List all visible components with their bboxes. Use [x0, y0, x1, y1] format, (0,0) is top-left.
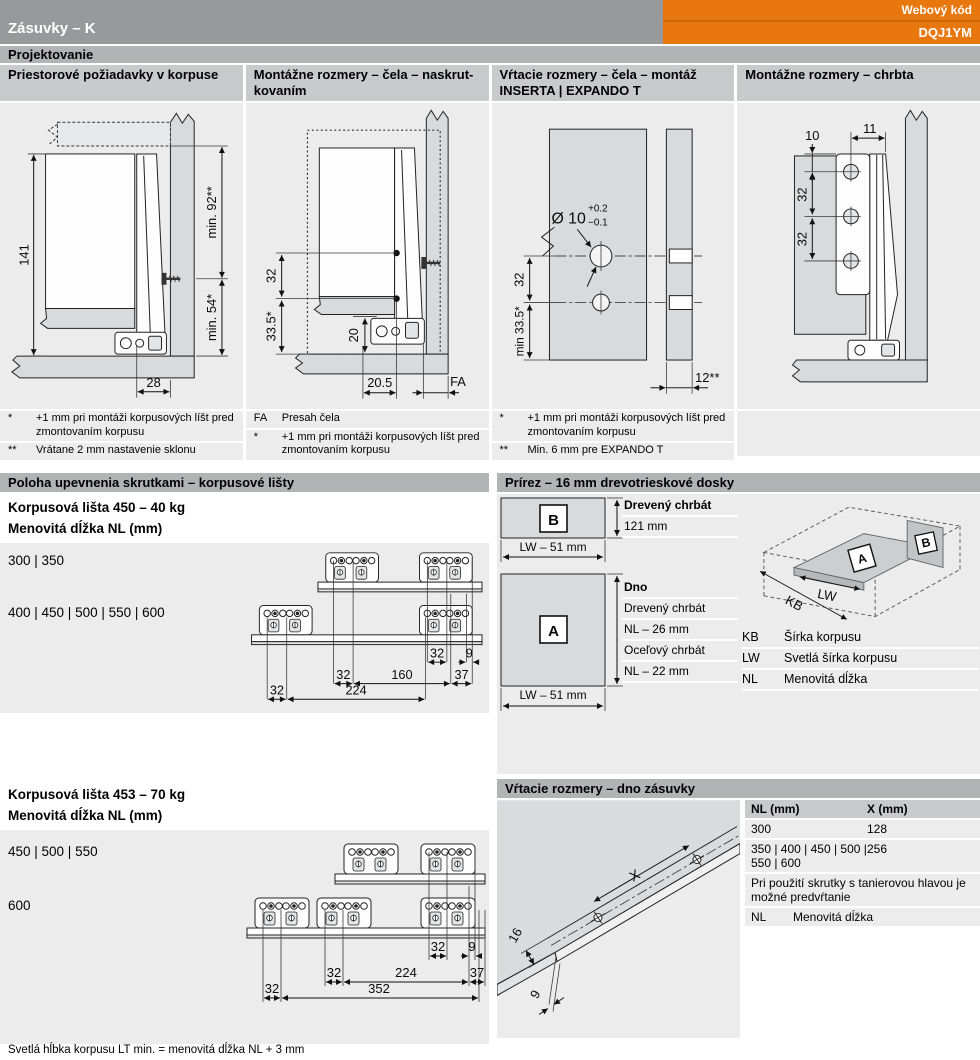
panel-b-label: B — [548, 512, 559, 529]
footnote-symbol: * — [254, 431, 282, 458]
column-header-nl: NL (mm) — [751, 802, 867, 816]
footnotes: FA Presah čela * +1 mm pri montáži korpu… — [246, 411, 489, 460]
dim-11: 11 — [863, 121, 876, 136]
legend-row: NL Menovitá dĺžka — [742, 670, 978, 691]
web-code-label: Webový kód — [663, 0, 980, 22]
label-row: Drevený chrbát — [622, 496, 738, 517]
footnote-symbol: ** — [500, 444, 528, 458]
cell-nl: 350 | 400 | 450 | 500 | 550 | 600 — [751, 842, 867, 870]
footnote: ** Min. 6 mm pre EXPANDO T — [492, 443, 735, 460]
drawer-isometric-drawing: A B LW KB — [742, 494, 980, 626]
legend-abbr: KB — [742, 630, 784, 645]
dim-min-33-5: min 33.5* — [512, 306, 526, 357]
panel-back-mounting: Montážne rozmery – chrbta — [737, 65, 980, 462]
rail-subheader: Korpusová lišta 450 – 40 kg Menovitá dĺž… — [0, 492, 489, 542]
legend-text: Menovitá dĺžka — [784, 672, 867, 687]
dim-tolerance-plus: +0.2 — [588, 203, 608, 214]
panel-drill-front: Vŕtacie rozmery – čela – montáž INSERTA … — [492, 65, 735, 462]
dim-32: 32 — [263, 269, 278, 283]
footnote-symbol: * — [8, 412, 36, 439]
panel-space-requirements: Priestorové požiadavky v korpuse — [0, 65, 243, 462]
back-mounting-drawing: 10 11 32 32 — [737, 103, 980, 409]
dim-32: 32 — [511, 273, 526, 287]
label-row: Dno — [622, 578, 738, 599]
drawing-area: 141 min. 92** min. 54* 28 — [0, 103, 243, 409]
dim-32-a: 32 — [795, 187, 810, 201]
panel-title-text: Priestorové požiadavky v korpuse — [8, 67, 218, 82]
page-title: Zásuvky – K — [8, 20, 96, 37]
panel-front-mounting: Montážne rozmery – čela – naskrut- kovan… — [246, 65, 489, 462]
dim-FA: FA — [450, 374, 466, 389]
footnotes: * +1 mm pri montáži korpusových líšt pre… — [0, 411, 243, 460]
footnote: FA Presah čela — [246, 411, 489, 428]
panel-title-line1: Vŕtacie rozmery – čela – montáž — [500, 67, 697, 82]
dim-12: 12** — [695, 370, 719, 385]
dim-9: 9 — [466, 646, 473, 660]
abbr-value: Menovitá dĺžka — [793, 910, 873, 924]
rail-length-label: Menovitá dĺžka NL (mm) — [8, 518, 481, 539]
dim-33-5: 33.5* — [263, 311, 278, 341]
dim-32: 32 — [336, 668, 350, 682]
dim-32: 32 — [327, 965, 341, 980]
footnote-symbol: * — [500, 412, 528, 439]
drill-front-drawing: Ø 10 +0.2 −0.1 32 min 33.5* — [492, 103, 735, 409]
footnote: * +1 mm pri montáži korpusových líšt pre… — [492, 411, 735, 441]
rail-name: Korpusová lišta 450 – 40 kg — [8, 497, 481, 518]
column-header-x: X (mm) — [867, 802, 908, 816]
section-bar: Prírez – 16 mm drevotrieskové dosky — [497, 473, 980, 492]
legend-row: LW Svetlá šírka korpusu — [742, 649, 978, 670]
footnote-spacer — [737, 411, 980, 456]
length-row: 600 — [8, 896, 178, 915]
space-requirements-drawing: 141 min. 92** min. 54* 28 — [0, 103, 243, 409]
rail-name: Korpusová lišta 453 – 70 kg — [8, 784, 481, 805]
dim-min-54: min. 54* — [204, 294, 219, 341]
section-cutting: Prírez – 16 mm drevotrieskové dosky B LW… — [497, 473, 980, 774]
cell-x: 256 — [867, 842, 887, 870]
cell-x: 128 — [867, 822, 887, 836]
legend-abbr: LW — [742, 651, 784, 666]
dim-lw-51: LW – 51 mm — [519, 540, 586, 554]
rail-40kg-content: 300 | 350 400 | 450 | 500 | 550 | 600 32 — [0, 543, 489, 713]
abbr-key: NL — [751, 910, 793, 924]
footnotes — [737, 411, 980, 456]
dim-9: 9 — [468, 939, 475, 954]
dim-lw-51: LW – 51 mm — [519, 688, 586, 702]
length-row: 400 | 450 | 500 | 550 | 600 — [8, 603, 178, 622]
dim-352: 352 — [368, 981, 390, 996]
iso-kb-label: KB — [783, 592, 806, 614]
footnote-symbol: ** — [8, 444, 36, 458]
table-row: 300 128 — [745, 820, 980, 838]
footnote-text: +1 mm pri montáži korpusových líšt pred … — [36, 412, 239, 439]
rail-40kg-drawing: 32 9 32 160 37 32 224 — [229, 545, 487, 711]
panel-title: Vŕtacie rozmery – čela – montáž INSERTA … — [492, 65, 735, 101]
footnotes: * +1 mm pri montáži korpusových líšt pre… — [492, 411, 735, 460]
legend-text: Svetlá šírka korpusu — [784, 651, 897, 666]
dim-height-141: 141 — [17, 244, 32, 265]
drawer-bottom-drawing: X 16 9 — [497, 800, 740, 1036]
panel-title: Priestorové požiadavky v korpuse — [0, 65, 243, 101]
dim-160: 160 — [391, 668, 412, 682]
dim-min-92: min. 92** — [204, 186, 219, 238]
footnote-text: +1 mm pri montáži korpusových líšt pred … — [528, 412, 731, 439]
rail-length-label: Menovitá dĺžka NL (mm) — [8, 805, 481, 826]
section-bar: Poloha upevnenia skrutkami – korpusové l… — [0, 473, 489, 492]
web-code-value: DQJ1YM — [663, 22, 980, 44]
table-header-row: NL (mm) X (mm) — [745, 800, 980, 818]
legend-row: KB Šírka korpusu — [742, 628, 978, 649]
dim-32: 32 — [270, 683, 284, 697]
label-row: NL – 22 mm — [622, 662, 738, 683]
panel-a-drawing: A LW – 51 mm — [499, 572, 634, 712]
panel-title-line1: Montážne rozmery – čela – naskrut- — [254, 67, 474, 82]
panel-title: Montážne rozmery – chrbta — [737, 65, 980, 101]
section-drill-bottom: Vŕtacie rozmery – dno zásuvky — [497, 779, 980, 1038]
dim-10: 10 — [805, 128, 819, 143]
footer-note: Svetlá hĺbka korpusu LT min. = menovitá … — [8, 1044, 304, 1056]
section-bar-projektovanie: Projektovanie — [0, 46, 980, 63]
dim-32: 32 — [431, 939, 445, 954]
cutting-content: B LW – 51 mm Drevený chrbát 121 mm A LW … — [497, 494, 980, 774]
dim-37: 37 — [454, 668, 468, 682]
label-row: Oceľový chrbát — [622, 641, 738, 662]
label-row: Drevený chrbát — [622, 599, 738, 620]
panel-title-line2: kovaním — [254, 83, 307, 98]
dim-diameter: Ø 10 — [551, 210, 586, 227]
drawing-area: Ø 10 +0.2 −0.1 32 min 33.5* — [492, 103, 735, 409]
rail-70kg-content: 450 | 500 | 550 600 32 — [0, 830, 489, 1044]
footnote-text: +1 mm pri montáži korpusových líšt pred … — [282, 431, 485, 458]
length-row: 300 | 350 — [8, 551, 64, 570]
front-mounting-drawing: 32 33.5* 20 20.5 FA — [246, 103, 489, 409]
footnote: * +1 mm pri montáži korpusových líšt pre… — [246, 430, 489, 460]
cell-nl: 300 — [751, 822, 867, 836]
dim-9: 9 — [527, 987, 544, 1001]
section-screw-positions: Poloha upevnenia skrutkami – korpusové l… — [0, 473, 489, 713]
dim-20-5: 20.5 — [367, 375, 392, 390]
panel-a-label: A — [548, 623, 559, 640]
table-note: Pri použití skrutky s tanierovou hlavou … — [745, 874, 980, 906]
dim-224: 224 — [395, 965, 417, 980]
panel-title-text: Montážne rozmery – chrbta — [745, 67, 913, 82]
planning-columns: Priestorové požiadavky v korpuse — [0, 65, 980, 462]
label-row: NL – 26 mm — [622, 620, 738, 641]
section-bar: Vŕtacie rozmery – dno zásuvky — [497, 779, 980, 798]
footnote-text: Vrátane 2 mm nastavenie sklonu — [36, 444, 239, 458]
rail-70kg-drawing: 32 9 32 224 37 32 352 — [229, 836, 487, 1006]
dim-37: 37 — [470, 965, 484, 980]
page-header: Zásuvky – K Webový kód DQJ1YM — [0, 0, 980, 44]
abbreviation-legend: KB Šírka korpusu LW Svetlá šírka korpusu… — [742, 628, 978, 691]
rail-subheader: Korpusová lišta 453 – 70 kg Menovitá dĺž… — [0, 779, 489, 829]
dim-224: 224 — [345, 683, 366, 697]
dim-28: 28 — [146, 375, 160, 390]
footnote-symbol: FA — [254, 412, 282, 426]
drawing-area: 32 33.5* 20 20.5 FA — [246, 103, 489, 409]
table-row: 350 | 400 | 450 | 500 | 550 | 600 256 — [745, 840, 980, 872]
drawing-area: X 16 9 — [497, 800, 740, 1038]
dim-20: 20 — [346, 328, 361, 342]
length-row: 450 | 500 | 550 — [8, 842, 98, 861]
section-rail-70kg: Korpusová lišta 453 – 70 kg Menovitá dĺž… — [0, 779, 489, 1044]
panel-b-drawing: B LW – 51 mm — [499, 494, 634, 564]
panel-b-labels: Drevený chrbát 121 mm — [622, 496, 738, 538]
drill-table: NL (mm) X (mm) 300 128 350 | 400 | 450 |… — [745, 800, 980, 926]
footnote: * +1 mm pri montáži korpusových líšt pre… — [0, 411, 243, 441]
footnote-text: Presah čela — [282, 412, 485, 426]
dim-32-b: 32 — [795, 232, 810, 246]
dim-32: 32 — [265, 981, 279, 996]
panel-title: Montážne rozmery – čela – naskrut- kovan… — [246, 65, 489, 101]
dim-tolerance-minus: −0.1 — [588, 217, 608, 228]
drawing-area: 10 11 32 32 — [737, 103, 980, 409]
panel-title-line2: INSERTA | EXPANDO T — [500, 83, 641, 98]
panel-a-labels: Dno Drevený chrbát NL – 26 mm Oceľový ch… — [622, 578, 738, 683]
footnote: ** Vrátane 2 mm nastavenie sklonu — [0, 443, 243, 460]
web-code-box: Webový kód DQJ1YM — [663, 0, 980, 44]
legend-text: Šírka korpusu — [784, 630, 861, 645]
abbreviation-row: NL Menovitá dĺžka — [745, 908, 980, 926]
legend-abbr: NL — [742, 672, 784, 687]
iso-lw-label: LW — [816, 586, 838, 604]
dim-32: 32 — [430, 646, 444, 660]
label-row: 121 mm — [622, 517, 738, 538]
drill-content: X 16 9 — [497, 800, 980, 1038]
footnote-text: Min. 6 mm pre EXPANDO T — [528, 444, 731, 458]
